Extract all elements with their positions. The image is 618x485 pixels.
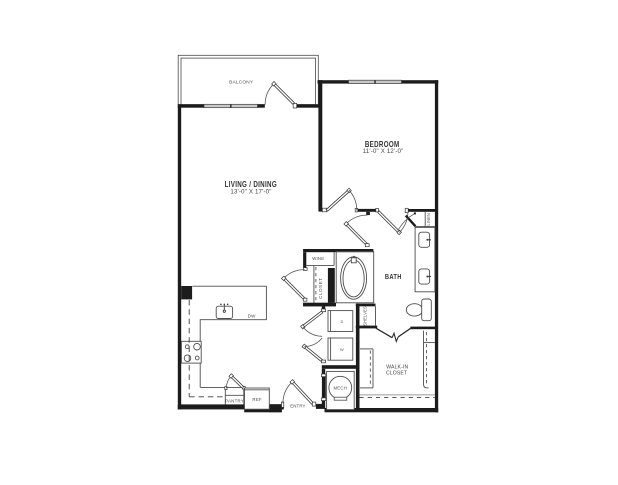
- svg-text:SHELVES: SHELVES: [363, 306, 368, 326]
- svg-text:REF: REF: [252, 397, 262, 402]
- svg-text:CLOSET: CLOSET: [386, 370, 407, 376]
- svg-text:D: D: [340, 319, 343, 324]
- svg-text:DW: DW: [248, 313, 256, 318]
- svg-text:PANTRY: PANTRY: [225, 399, 244, 404]
- svg-text:BALCONY: BALCONY: [229, 79, 254, 84]
- svg-text:W: W: [340, 347, 344, 352]
- svg-text:MECH: MECH: [333, 385, 347, 390]
- svg-text:13'-0" X 17'-0": 13'-0" X 17'-0": [230, 188, 271, 195]
- svg-text:11'-0" X 12'-0": 11'-0" X 12'-0": [363, 148, 404, 155]
- svg-text:BATH: BATH: [385, 274, 402, 282]
- svg-text:LINEN: LINEN: [426, 213, 431, 226]
- svg-text:CLOSET: CLOSET: [318, 278, 323, 299]
- svg-text:WALK-IN: WALK-IN: [386, 364, 408, 370]
- svg-text:WINE: WINE: [312, 256, 324, 261]
- svg-text:ENTRY: ENTRY: [290, 404, 305, 409]
